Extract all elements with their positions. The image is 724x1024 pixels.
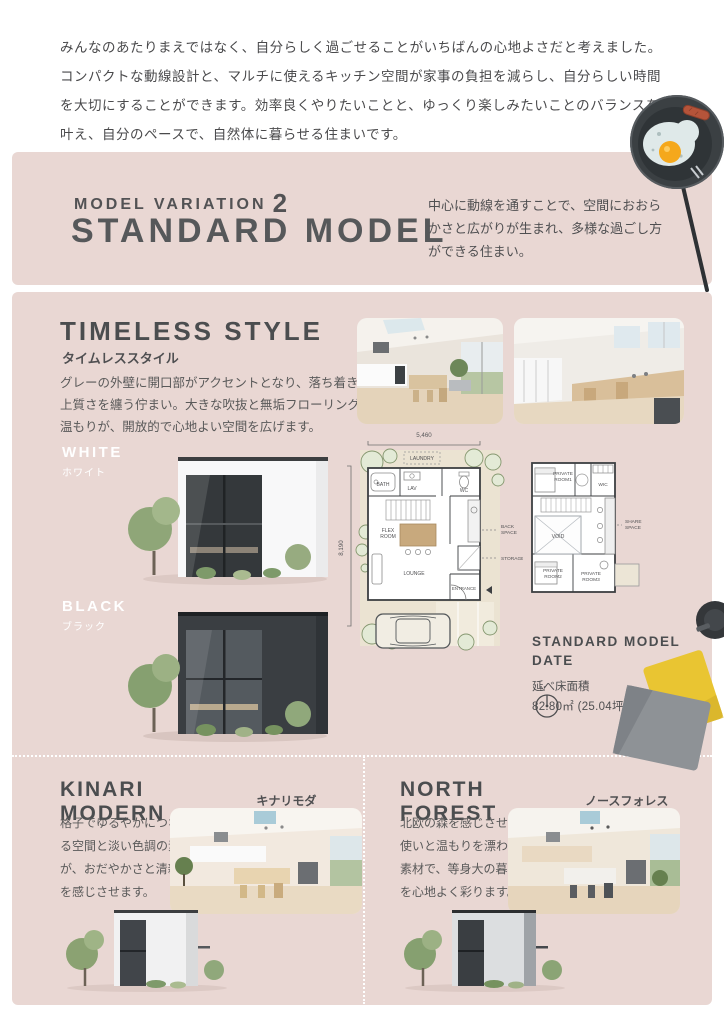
black-label-ja: ブラック xyxy=(62,618,127,633)
white-label-ja: ホワイト xyxy=(62,464,123,479)
white-house-image xyxy=(120,447,350,592)
intro-paragraph: みんなのあたりまえではなく、自分らしく過ごせることがいちばんの心地よさだと考えま… xyxy=(60,33,670,149)
eyebrow-text: MODEL VARIATION xyxy=(74,196,267,213)
brochure-page: みんなのあたりまえではなく、自分らしく過ごせることがいちばんの心地よさだと考えま… xyxy=(0,0,724,1024)
room-lounge: LOUNGE xyxy=(403,571,425,577)
kinari-house-image xyxy=(52,904,242,999)
variant-black-label: BLACK ブラック xyxy=(62,598,127,633)
fried-egg-pan-image xyxy=(595,82,724,297)
room-laundry: LAUNDRY xyxy=(410,456,434,462)
variant-white-label: WHITE ホワイト xyxy=(62,444,123,479)
room-flex: FLEXROOM xyxy=(380,528,396,540)
room-private2: PRIVATEROOM2 xyxy=(543,568,563,580)
room-void: VOID xyxy=(552,534,565,540)
north-house-image xyxy=(390,904,580,999)
kinari-interior-photo xyxy=(170,808,362,914)
black-house-image xyxy=(120,600,350,750)
timeless-style-title: TIMELESS STYLE xyxy=(60,316,323,347)
floorplan-2f: PRIVATEROOM1 WIC VOID PRIVATEROOM2 PRIVA… xyxy=(525,448,675,603)
label-storage: STORAGE xyxy=(501,556,523,562)
label-back-space: BACKSPACE xyxy=(501,524,517,536)
timeless-style-description: グレーの外壁に開口部がアクセントとなり、落ち着きと上質さを纏う佇まい。大きな吹抜… xyxy=(60,372,378,438)
timeless-style-subtitle: タイムレススタイル xyxy=(62,348,179,367)
label-share-space: SHARESPACE xyxy=(625,519,642,531)
white-label: WHITE xyxy=(62,444,123,461)
room-wc: WC xyxy=(460,488,469,494)
north-compass-icon: N xyxy=(530,682,564,720)
black-label: BLACK xyxy=(62,598,127,615)
dim-height-label: 8,190 xyxy=(338,540,345,556)
room-lav: LAV xyxy=(407,486,417,492)
interior-photo-kitchen xyxy=(357,318,503,424)
room-entrance: ENTRANCE xyxy=(452,586,476,591)
north-interior-photo xyxy=(508,808,680,914)
section-divider-vertical xyxy=(363,756,365,1004)
room-private1: PRIVATEROOM1 xyxy=(553,471,573,483)
room-wic: WIC xyxy=(598,482,608,488)
page-title: STANDARD MODEL xyxy=(71,212,447,251)
cushions-decoration-image xyxy=(600,585,724,785)
room-private3: PRIVATEROOM3 xyxy=(581,571,601,583)
floorplan-1f: 5,460 8,190 xyxy=(338,428,523,665)
compass-n-label: N xyxy=(540,686,545,693)
dim-width-label: 5,460 xyxy=(416,432,432,439)
room-bath: BATH xyxy=(377,482,390,488)
interior-photo-workspace xyxy=(514,318,684,424)
